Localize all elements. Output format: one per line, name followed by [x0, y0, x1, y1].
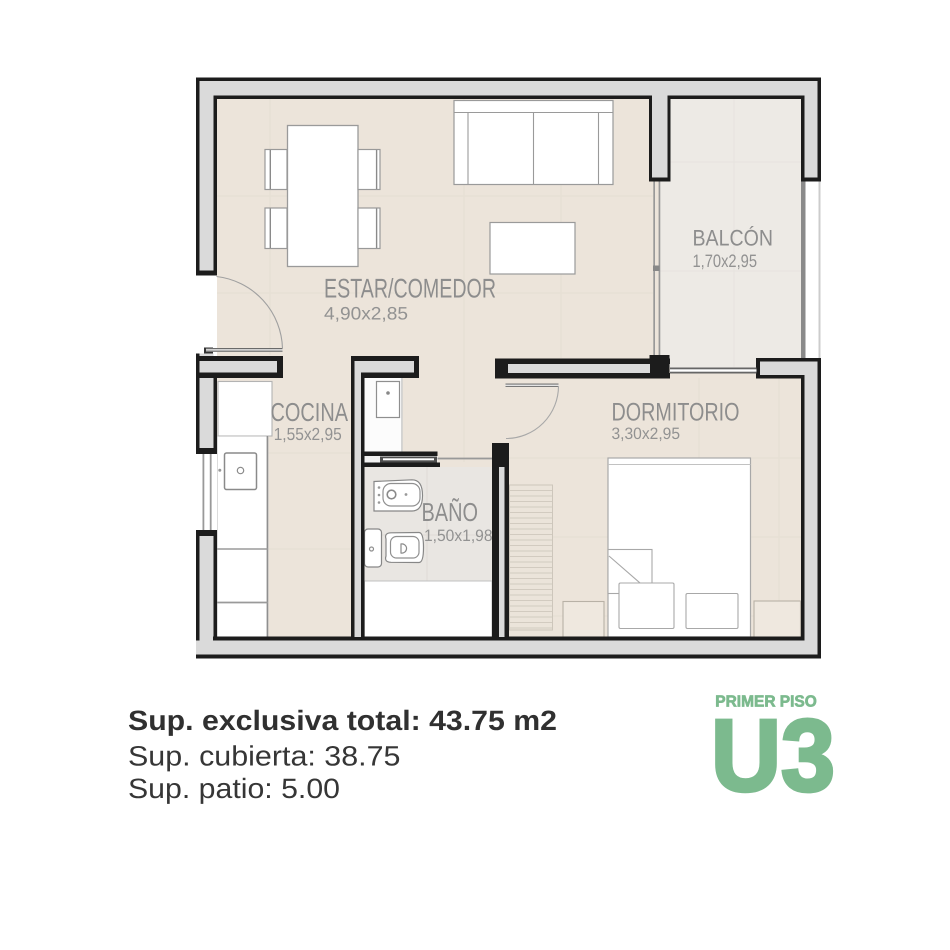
svg-text:3,30x2,95: 3,30x2,95	[612, 425, 681, 443]
svg-text:COCINA: COCINA	[271, 397, 349, 427]
svg-text:Sup. exclusiva total: 43.75 m2: Sup. exclusiva total: 43.75 m2	[128, 705, 557, 736]
svg-text:BAÑO: BAÑO	[422, 497, 479, 527]
svg-text:U3: U3	[711, 699, 835, 813]
svg-text:Sup. patio: 5.00: Sup. patio: 5.00	[128, 773, 340, 804]
svg-text:ESTAR/COMEDOR: ESTAR/COMEDOR	[324, 274, 496, 304]
svg-text:4,90x2,85: 4,90x2,85	[324, 304, 408, 324]
svg-text:1,70x2,95: 1,70x2,95	[693, 251, 758, 271]
svg-text:1,50x1,98: 1,50x1,98	[424, 527, 493, 545]
svg-text:1,55x2,95: 1,55x2,95	[274, 424, 342, 444]
svg-text:DORMITORIO: DORMITORIO	[612, 399, 740, 427]
svg-text:BALCÓN: BALCÓN	[693, 226, 774, 251]
svg-text:Sup. cubierta: 38.75: Sup. cubierta: 38.75	[128, 741, 401, 772]
